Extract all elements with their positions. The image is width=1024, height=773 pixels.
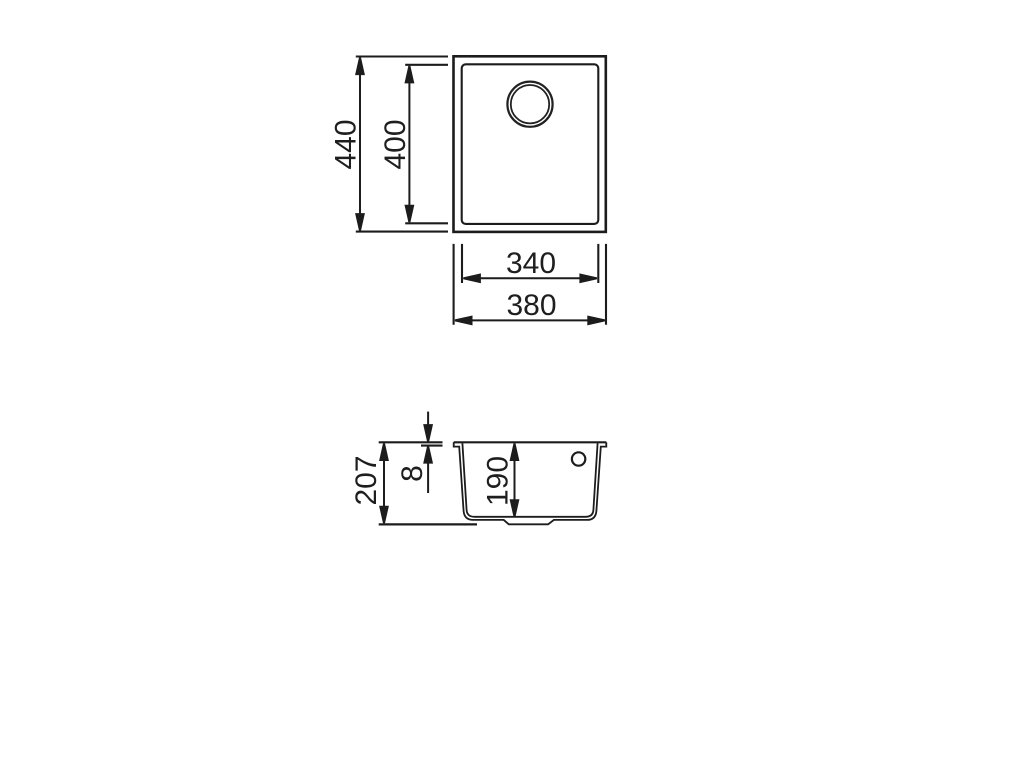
svg-text:440: 440 — [330, 119, 363, 169]
svg-text:380: 380 — [506, 289, 556, 322]
svg-text:340: 340 — [506, 247, 556, 280]
svg-text:400: 400 — [379, 119, 412, 169]
svg-text:8: 8 — [396, 465, 429, 482]
svg-text:190: 190 — [481, 456, 514, 506]
svg-text:207: 207 — [350, 455, 383, 505]
